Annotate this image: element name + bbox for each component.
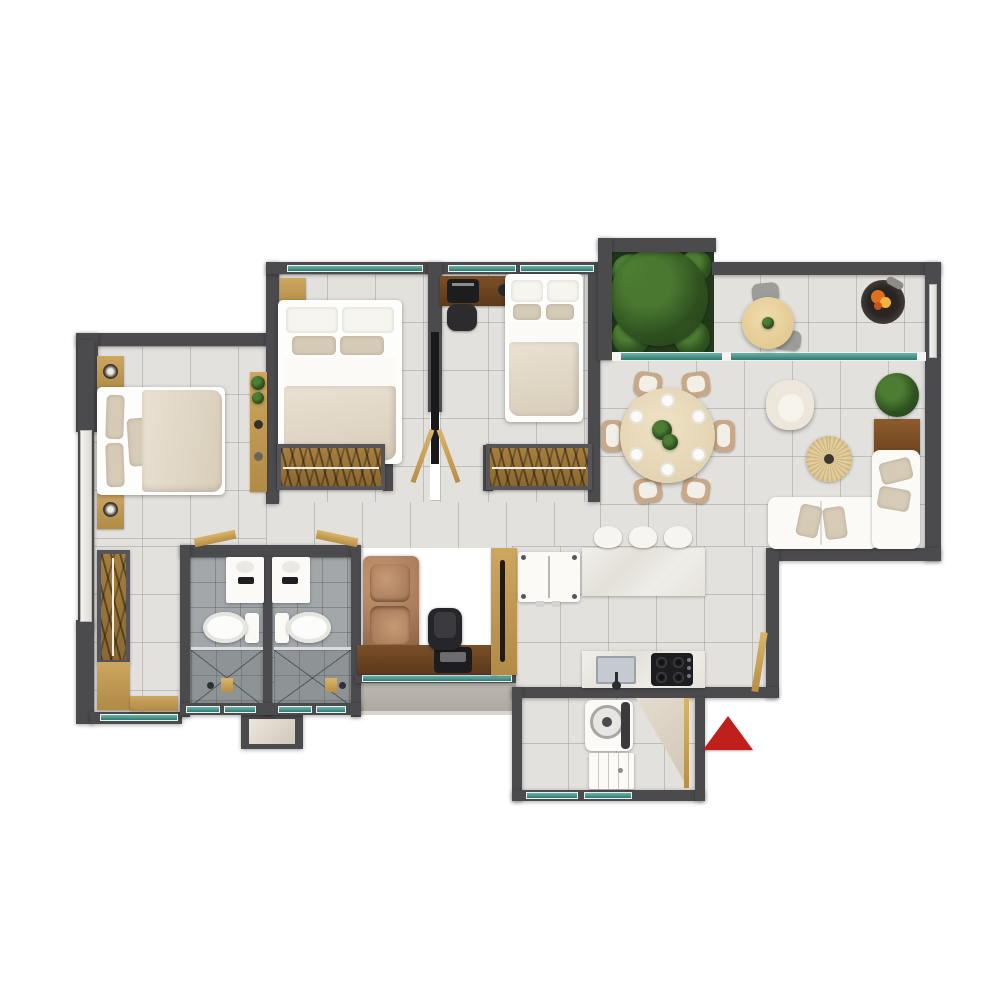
chair-cushion (606, 424, 619, 447)
wall-utility-left (512, 687, 522, 801)
window-alcove (100, 714, 178, 721)
chair-cushion (717, 424, 730, 447)
window-bathroom2-a (278, 706, 312, 713)
bed-pillow (546, 304, 574, 320)
hob-knob (687, 666, 691, 670)
sliding-door-panels (431, 332, 439, 464)
wall-bathrooms-top (180, 545, 361, 557)
refrigerator-handle (552, 601, 560, 607)
sink-bowl (282, 561, 300, 573)
glass-door-frame-cap (612, 352, 621, 361)
shower-glass-partition (274, 647, 351, 650)
window-bedroom2 (287, 265, 423, 272)
wardrobe-rail (283, 467, 379, 469)
armchair-seat (778, 394, 804, 422)
wall-garden-top (598, 238, 716, 252)
sink-faucet-stem (615, 672, 618, 682)
window-right-wall (929, 284, 937, 358)
loveseat-cushion (370, 564, 410, 602)
computer-screen-line (452, 283, 474, 286)
window-utility-a (526, 792, 578, 799)
desk-chair (447, 304, 477, 331)
wall-bathroom-divider (263, 557, 272, 715)
chair-cushion (686, 481, 706, 499)
refrigerator-hinge (521, 555, 526, 560)
bed-pillow (105, 443, 125, 488)
wall-kitchen-right-step (766, 548, 779, 698)
toilet-bowl (287, 612, 331, 643)
window-study (362, 675, 512, 682)
keyboard-icon (440, 652, 466, 662)
place-setting (660, 462, 675, 477)
cabinet-handle-slot (500, 560, 505, 662)
shower-drain-icon (207, 682, 214, 689)
hob-knob (687, 674, 691, 678)
office-chair-seat (434, 612, 456, 638)
open-wardrobe (277, 444, 385, 490)
study-desk (357, 645, 497, 674)
wardrobe-interior (281, 448, 381, 486)
shelf-plant-icon (252, 392, 264, 404)
refrigerator-hinge (521, 594, 526, 599)
wardrobe-base-cabinet (97, 662, 130, 710)
terrace-table-plant-icon (762, 317, 774, 329)
glass-door-frame-cap (917, 352, 926, 361)
refrigerator-handle (536, 601, 544, 607)
place-setting (660, 393, 675, 408)
dining-chair (712, 420, 735, 452)
bed-duvet (509, 342, 579, 416)
decor-shelf (250, 372, 267, 492)
washing-machine-panel (621, 702, 630, 749)
sink-faucet-icon (612, 681, 621, 690)
bed-pillow (105, 395, 125, 440)
hob-burner (673, 657, 684, 668)
window-bathroom2-b (316, 706, 346, 713)
table-lamp-icon (103, 502, 118, 517)
shelf-decor-icon (254, 452, 263, 461)
side-table-icon (824, 454, 834, 464)
corridor-floor (266, 500, 600, 548)
place-setting (629, 409, 644, 424)
window-bedroom3-a (448, 265, 516, 272)
garden-tree-icon (610, 248, 708, 346)
faucet-icon (282, 577, 298, 584)
hob-burner (656, 657, 667, 668)
shelf-decor-icon (254, 420, 263, 429)
bar-stool (629, 526, 657, 548)
bed-pillow (292, 336, 336, 355)
place-setting (629, 447, 644, 462)
window-utility-b (584, 792, 632, 799)
ledge-deck-edge (358, 711, 516, 715)
sofa-cushion (822, 506, 848, 541)
bed-pillow (340, 336, 384, 355)
toilet-bowl (203, 612, 247, 643)
wardrobe-tall (97, 550, 130, 664)
ledge-deck (358, 681, 516, 715)
shower-fixture-icon (221, 678, 233, 692)
table-centerpiece-icon (662, 434, 678, 450)
faucet-icon (238, 577, 254, 584)
table-lamp-icon (103, 364, 118, 379)
refrigerator-hinge (572, 555, 577, 560)
utility-door-leaf (684, 698, 689, 788)
entrance-marker-arrow (703, 716, 753, 750)
wardrobe-bench (130, 696, 178, 711)
place-setting (691, 409, 706, 424)
refrigerator-door-split (548, 556, 550, 598)
place-setting (691, 447, 706, 462)
shower-2-floor (274, 650, 351, 706)
floor-plan (0, 0, 1000, 1000)
shelf-plant-icon (251, 376, 265, 390)
wall-kitchen-bottom (512, 687, 778, 698)
shower-glass-partition (191, 647, 263, 650)
wall-bathrooms-left (180, 545, 190, 717)
bed-sheet (284, 358, 396, 386)
cabinet-knob (618, 768, 623, 773)
open-wardrobe (486, 444, 592, 490)
wall-left-lower (76, 620, 94, 724)
wardrobe-rail (112, 558, 114, 656)
bed-pillow (342, 307, 394, 333)
hob-burner (673, 672, 684, 683)
toilet-tank (245, 613, 259, 643)
sliding-glass-door (612, 352, 926, 361)
wardrobe-rail (492, 467, 586, 469)
wall-garden-left (598, 238, 612, 360)
chair-cushion (638, 481, 658, 499)
bed-pillow (286, 307, 338, 333)
hob-burner (656, 672, 667, 683)
breakfast-island (582, 548, 705, 596)
bar-stool (594, 526, 622, 548)
wall-living-bottom (770, 548, 941, 561)
window-left-wall (80, 430, 92, 622)
shower-drain-icon (339, 682, 346, 689)
wall-bathrooms-right (351, 545, 361, 717)
shower-fixture-icon (325, 678, 337, 692)
window-bathroom1-a (186, 706, 220, 713)
dining-chair (680, 476, 711, 505)
refrigerator-hinge (572, 594, 577, 599)
wall-master-top (76, 333, 268, 346)
potted-plant-icon (875, 373, 919, 417)
wardrobe-interior (101, 554, 126, 660)
utility-cabinet (589, 753, 634, 789)
sink-bowl (236, 561, 254, 573)
fire-flame-icon (874, 302, 882, 310)
loveseat-cushion (370, 606, 410, 644)
bar-stool (664, 526, 692, 548)
chair-cushion (686, 375, 706, 393)
hob-knob (687, 658, 691, 662)
window-bedroom3-b (520, 265, 594, 272)
bed-duvet (142, 390, 222, 492)
bed-sheet (509, 322, 579, 342)
wardrobe-interior (490, 448, 588, 486)
glass-door-handle (722, 352, 731, 361)
bed-pillow (547, 280, 579, 302)
service-shaft-inner (249, 719, 295, 744)
bed-pillow (511, 280, 543, 302)
washing-machine-agitator (602, 717, 612, 727)
window-bathroom1-b (224, 706, 256, 713)
wall-terrace-top (712, 262, 941, 275)
bed-pillow (513, 304, 541, 320)
